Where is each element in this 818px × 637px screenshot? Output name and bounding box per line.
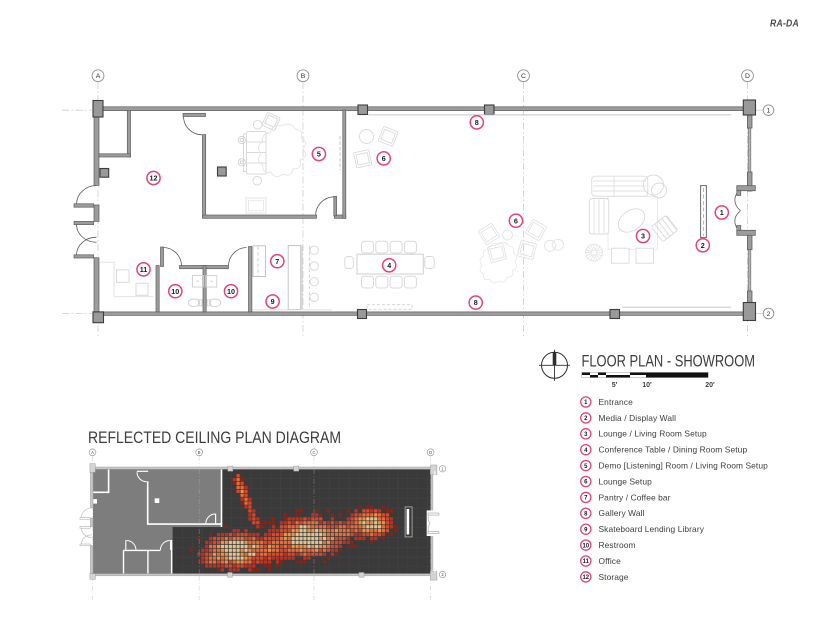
svg-text:8: 8: [474, 298, 478, 307]
svg-text:D: D: [429, 450, 432, 455]
svg-text:C: C: [312, 450, 315, 455]
svg-text:Media / Display Wall: Media / Display Wall: [599, 413, 677, 423]
svg-text:A: A: [91, 450, 94, 455]
svg-text:Office: Office: [599, 556, 622, 566]
svg-text:20': 20': [705, 382, 715, 389]
svg-text:B: B: [198, 450, 201, 455]
svg-text:6: 6: [514, 216, 518, 225]
svg-text:12: 12: [150, 174, 158, 183]
svg-text:Entrance: Entrance: [599, 397, 634, 407]
svg-text:Restroom: Restroom: [599, 540, 636, 550]
svg-text:A: A: [96, 73, 101, 80]
svg-text:11: 11: [583, 559, 590, 565]
svg-text:7: 7: [275, 257, 279, 266]
svg-text:2: 2: [767, 311, 771, 318]
svg-text:5': 5': [612, 382, 618, 389]
svg-text:4: 4: [387, 261, 391, 270]
svg-text:10: 10: [582, 543, 589, 549]
svg-text:Storage: Storage: [599, 572, 629, 582]
svg-text:Demo [Listening] Room / Living: Demo [Listening] Room / Living Room Setu…: [599, 461, 769, 471]
svg-text:1: 1: [720, 208, 724, 217]
svg-text:FLOOR PLAN - SHOWROOM: FLOOR PLAN - SHOWROOM: [582, 351, 756, 370]
svg-text:1: 1: [767, 108, 771, 115]
svg-text:2: 2: [701, 241, 705, 250]
svg-text:10': 10': [642, 382, 652, 389]
svg-text:10: 10: [227, 287, 235, 296]
svg-text:Gallery Wall: Gallery Wall: [599, 508, 645, 518]
svg-text:Lounge Setup: Lounge Setup: [599, 476, 653, 486]
svg-text:8: 8: [475, 118, 479, 127]
svg-text:11: 11: [140, 265, 148, 274]
svg-text:Skateboard Lending Library: Skateboard Lending Library: [599, 524, 705, 534]
svg-text:5: 5: [317, 150, 321, 159]
svg-text:RA-DA: RA-DA: [770, 18, 799, 30]
svg-text:Lounge / Living Room Setup: Lounge / Living Room Setup: [599, 429, 708, 439]
svg-text:3: 3: [641, 232, 645, 241]
svg-text:6: 6: [382, 154, 386, 163]
svg-text:D: D: [745, 73, 750, 80]
svg-text:Conference Table / Dining Room: Conference Table / Dining Room Setup: [599, 445, 748, 455]
svg-text:12: 12: [582, 575, 589, 581]
svg-text:Pantry / Coffee bar: Pantry / Coffee bar: [599, 492, 671, 502]
svg-text:B: B: [301, 73, 306, 80]
svg-text:REFLECTED CEILING PLAN DIAGRAM: REFLECTED CEILING PLAN DIAGRAM: [88, 428, 341, 447]
svg-text:9: 9: [271, 297, 275, 306]
svg-text:10: 10: [171, 287, 179, 296]
svg-text:C: C: [521, 73, 526, 80]
